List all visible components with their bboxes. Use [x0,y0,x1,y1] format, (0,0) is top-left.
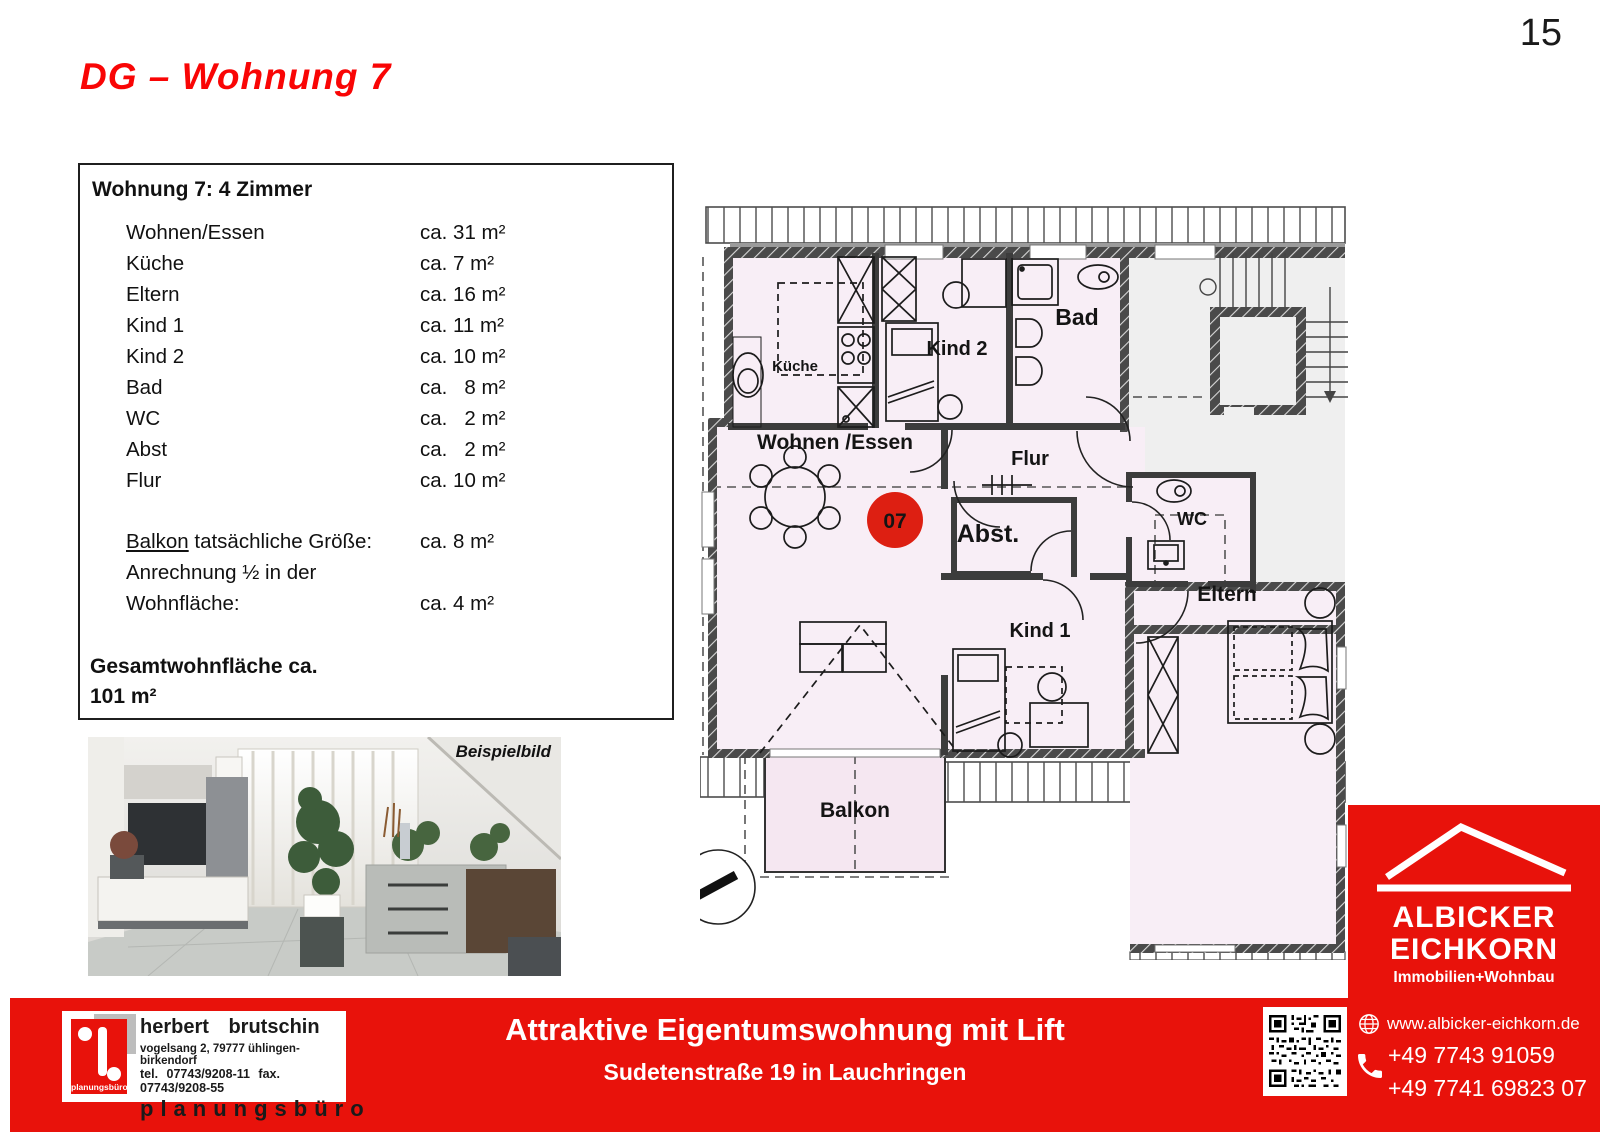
brutschin-address: vogelsang 2, 79777 ühlingen-birkendorf [140,1043,342,1067]
room-label-bad: Bad [1055,304,1098,330]
room-row: Wohnen/Essenca. 31 m² [80,217,672,248]
room-row: Elternca. 16 m² [80,279,672,310]
info-box-heading: Wohnung 7: 4 Zimmer [92,178,672,202]
room-list: Wohnen/Essenca. 31 m² Kücheca. 7 m² Elte… [80,217,672,496]
balcony-info: Balkon tatsächliche Größe:ca. 8 m² Anrec… [80,526,672,619]
page: 15 DG – Wohnung 7 Wohnung 7: 4 Zimmer Wo… [0,0,1600,1132]
banner-headline: Attraktive Eigentumswohnung mit Lift [360,1012,1210,1048]
phone-number-2[interactable]: +49 7741 69823 07 [1388,1072,1600,1105]
room-row: Badca. 8 m² [80,372,672,403]
globe-icon [1358,1013,1380,1035]
contact-block: www.albicker-eichkorn.de +49 7743 91059 … [1358,1004,1600,1105]
room-label-flur: Flur [1011,448,1049,470]
unit-badge: 07 [867,492,923,548]
brutschin-word: planungsbüro [140,1096,342,1122]
living-room-photo-graphic [88,737,561,976]
phone-icon [1354,1050,1386,1082]
brutschin-phone: tel. 07743/9208-11 fax. 07743/9208-55 [140,1067,342,1095]
room-label-eltern: Eltern [1197,583,1257,606]
photo-caption: Beispielbild [456,742,551,762]
room-row: Kind 1ca. 11 m² [80,310,672,341]
phone-number-1[interactable]: +49 7743 91059 [1388,1039,1600,1072]
example-photo: Beispielbild [88,737,561,976]
room-label-wc: WC [1177,509,1207,529]
room-row: WCca. 2 m² [80,403,672,434]
albicker-logo-box: ALBICKER EICHKORN Immobilien+Wohnbau [1348,805,1600,999]
page-title: DG – Wohnung 7 [80,56,391,98]
room-label-kind1: Kind 1 [1009,620,1070,642]
room-row: Kind 2ca. 10 m² [80,341,672,372]
room-label-wohnen: Wohnen /Essen [757,431,913,454]
room-row: Kücheca. 7 m² [80,248,672,279]
page-number: 15 [1520,12,1562,55]
roof-icon [1369,815,1579,897]
website-link[interactable]: www.albicker-eichkorn.de [1387,1014,1580,1034]
room-label-balkon: Balkon [820,799,890,822]
albicker-tagline: Immobilien+Wohnbau [1348,969,1600,987]
qr-code [1263,1007,1347,1096]
room-row: Flurca. 10 m² [80,465,672,496]
icon-caption: planungsbüro [71,1082,127,1092]
planungsbuero-icon: planungsbüro [71,1019,127,1094]
planungsbuero-logo-box: planungsbüro herbert brutschin vogelsang… [62,1011,346,1102]
apartment-info-box: Wohnung 7: 4 Zimmer Wohnen/Essenca. 31 m… [78,163,674,720]
banner-subline: Sudetenstraße 19 in Lauchringen [360,1059,1210,1086]
lift-shaft [1210,307,1306,417]
room-label-kueche: Küche [772,358,818,375]
roof-overhang-top [706,207,1345,252]
room-label-abst: Abst. [957,520,1020,548]
total-area: Gesamtwohnfläche ca. 101 m² [90,652,672,712]
svg-text:07: 07 [883,510,906,533]
room-row: Abstca. 2 m² [80,434,672,465]
albicker-line1: ALBICKER [1348,902,1600,934]
room-label-kind2: Kind 2 [926,338,987,360]
brutschin-name: herbert brutschin [140,1016,342,1039]
albicker-line2: EICHKORN [1348,934,1600,966]
north-arrow [700,850,755,924]
